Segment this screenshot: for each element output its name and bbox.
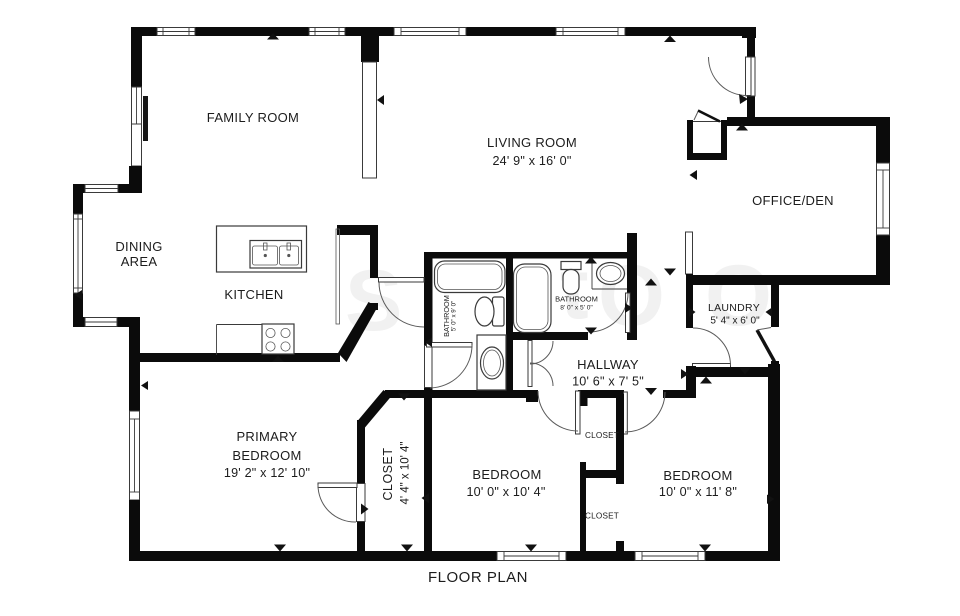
svg-text:10' 0" x 10' 4": 10' 0" x 10' 4" xyxy=(466,485,545,499)
svg-text:8' 0" x 5' 0": 8' 0" x 5' 0" xyxy=(560,305,593,312)
svg-text:DINING: DINING xyxy=(115,239,162,254)
svg-text:5' 4" x 6' 0": 5' 4" x 6' 0" xyxy=(710,316,760,327)
svg-text:4' 4" x 10' 4": 4' 4" x 10' 4" xyxy=(400,441,412,504)
svg-text:FLOOR PLAN: FLOOR PLAN xyxy=(428,569,528,586)
svg-text:CLOSET: CLOSET xyxy=(585,512,619,521)
svg-text:19' 2" x 12' 10": 19' 2" x 12' 10" xyxy=(224,466,310,480)
svg-text:BEDROOM: BEDROOM xyxy=(663,468,732,483)
svg-text:10' 6" x 7' 5": 10' 6" x 7' 5" xyxy=(572,375,644,389)
svg-text:PRIMARY: PRIMARY xyxy=(236,429,297,444)
svg-text:KITCHEN: KITCHEN xyxy=(224,287,283,302)
svg-text:LIVING ROOM: LIVING ROOM xyxy=(487,135,577,150)
svg-text:HALLWAY: HALLWAY xyxy=(577,357,639,372)
svg-text:OFFICE/DEN: OFFICE/DEN xyxy=(752,193,834,208)
svg-text:CLOSET: CLOSET xyxy=(585,431,619,440)
svg-text:BATHROOM: BATHROOM xyxy=(555,295,598,304)
svg-text:FAMILY ROOM: FAMILY ROOM xyxy=(207,110,299,125)
svg-text:AREA: AREA xyxy=(121,254,158,269)
svg-text:24' 9" x 16' 0": 24' 9" x 16' 0" xyxy=(492,154,571,168)
svg-text:10' 0" x 11' 8": 10' 0" x 11' 8" xyxy=(659,485,737,499)
svg-text:5' 0" x 9' 0": 5' 0" x 9' 0" xyxy=(451,301,458,332)
svg-text:LAUNDRY: LAUNDRY xyxy=(708,302,760,314)
svg-text:BEDROOM: BEDROOM xyxy=(232,448,301,463)
svg-text:CLOSET: CLOSET xyxy=(381,447,395,500)
svg-text:BEDROOM: BEDROOM xyxy=(472,467,541,482)
